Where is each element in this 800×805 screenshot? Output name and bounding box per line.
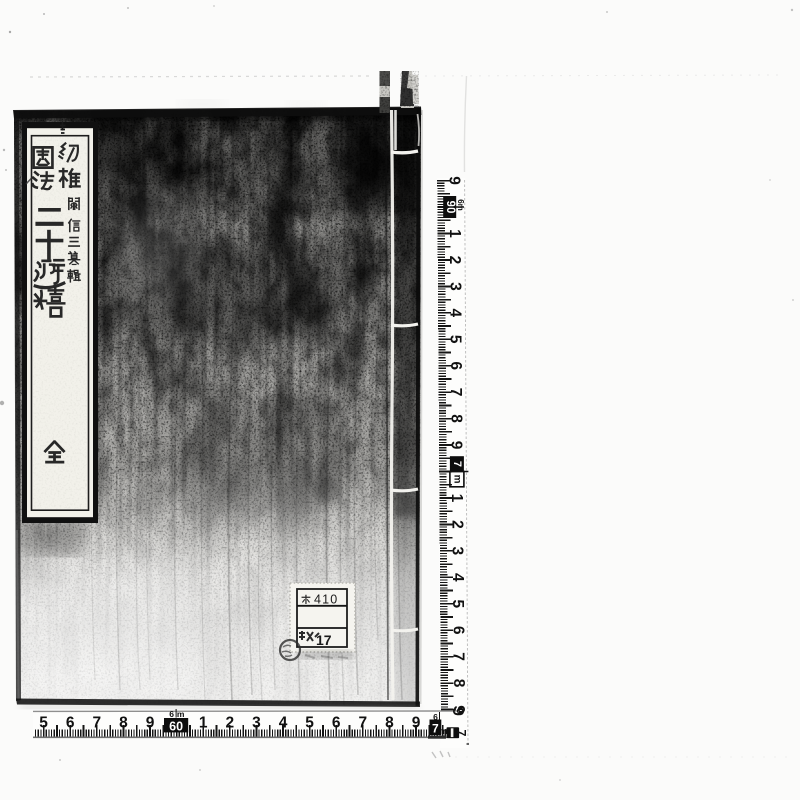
svg-text:3: 3	[449, 546, 466, 555]
svg-text:7: 7	[451, 461, 463, 467]
svg-text:6: 6	[169, 709, 174, 719]
svg-text:3: 3	[252, 715, 261, 732]
svg-text:6: 6	[66, 715, 75, 732]
svg-text:2: 2	[446, 256, 463, 265]
svg-text:17: 17	[316, 632, 332, 648]
svg-text:4: 4	[449, 573, 466, 582]
svg-text:4: 4	[447, 308, 464, 317]
svg-text:9: 9	[448, 441, 465, 450]
svg-text:410: 410	[314, 593, 338, 607]
svg-text:4: 4	[279, 715, 288, 732]
svg-text:6: 6	[447, 361, 464, 370]
svg-text:5: 5	[449, 599, 466, 608]
svg-text:5: 5	[305, 715, 314, 732]
svg-text:2: 2	[225, 715, 234, 732]
svg-text:8: 8	[450, 679, 467, 688]
svg-text:1: 1	[446, 229, 463, 238]
svg-text:9: 9	[146, 715, 155, 732]
svg-text:7: 7	[358, 715, 367, 732]
svg-text:m: m	[177, 709, 185, 719]
svg-text:2: 2	[448, 520, 465, 529]
svg-text:m: m	[451, 475, 462, 484]
svg-text:m: m	[439, 726, 447, 736]
svg-text:5: 5	[447, 335, 464, 344]
svg-text:60: 60	[169, 720, 183, 734]
svg-text:7: 7	[92, 715, 101, 732]
svg-text:9: 9	[412, 715, 421, 732]
svg-text:7: 7	[447, 388, 464, 397]
svg-text:6: 6	[449, 626, 466, 635]
svg-text:3: 3	[446, 282, 463, 291]
svg-text:6m: 6m	[456, 199, 465, 211]
svg-text:1: 1	[199, 715, 208, 732]
svg-text:5: 5	[39, 715, 48, 732]
svg-text:9: 9	[445, 176, 462, 185]
svg-text:8: 8	[447, 414, 464, 423]
svg-text:7: 7	[454, 730, 468, 737]
svg-text:8: 8	[385, 715, 394, 732]
svg-text:6: 6	[332, 715, 341, 732]
svg-text:7: 7	[450, 652, 467, 661]
svg-text:7: 7	[432, 721, 439, 735]
svg-text:9: 9	[449, 707, 466, 716]
svg-text:8: 8	[119, 715, 128, 732]
svg-text:1: 1	[448, 494, 465, 503]
